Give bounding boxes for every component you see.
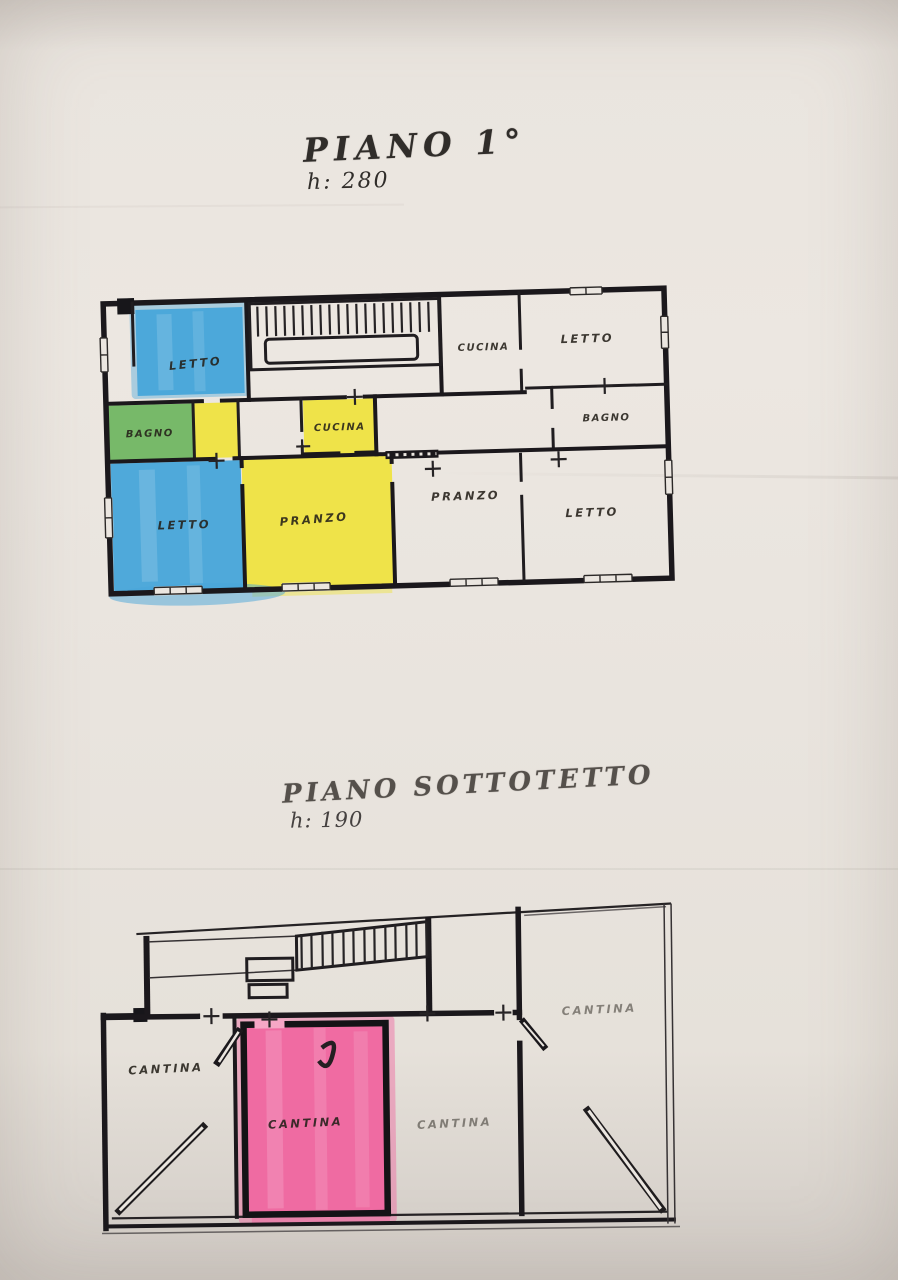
stair-outline (296, 921, 429, 970)
wall-with-door (518, 909, 522, 1213)
room-label-bagno-left: BAGNO (126, 428, 174, 440)
plan2-title: PIANO SOTTOTETTO (281, 760, 655, 809)
wall-with-door (521, 454, 525, 580)
wall (234, 1016, 236, 1217)
wall-with-doors (103, 1012, 519, 1017)
wall-outer-top-sloped (136, 904, 671, 935)
window (660, 316, 670, 348)
diagonal-door-leaf-core (523, 1022, 543, 1046)
wall (238, 400, 240, 458)
window (450, 577, 498, 587)
paper-crease (0, 204, 404, 209)
room-label-pranzo-right: PRANZO (431, 488, 500, 504)
room-label-letto-bottom-right: LETTO (565, 505, 619, 520)
room-label-bagno-right: BAGNO (582, 412, 630, 424)
door-tick (203, 1008, 219, 1024)
wall-outer-left (103, 1015, 106, 1228)
wall-outer-bottom-thin (102, 1226, 680, 1233)
window (664, 460, 674, 494)
stair-treads (257, 302, 429, 337)
wall-outer-right-thin (664, 904, 668, 1224)
room-fill-letto-top-left (135, 307, 244, 396)
door-tick (596, 378, 612, 394)
door-tick (550, 451, 566, 467)
plan1-floorplan-drawing: LETTO CUCINA LETTO BAGNO CUCINA BAGNO LE… (98, 278, 678, 600)
wall (193, 401, 195, 459)
wall-outer-right-thin (671, 904, 675, 1224)
room-label-letto-bottom-left: LETTO (157, 517, 211, 532)
stair-lower-run (265, 335, 418, 363)
wall-with-door (519, 292, 522, 392)
paper-crease (0, 868, 898, 870)
plan1-staircase (249, 299, 441, 370)
room-label-cucina-small: CUCINA (314, 422, 366, 434)
stair-landing (247, 958, 293, 981)
room-label-letto-top-right: LETTO (560, 331, 614, 346)
marker-streak (192, 311, 205, 391)
window (104, 498, 114, 538)
wall-stub (132, 303, 134, 365)
window (584, 573, 632, 583)
stair-treads (301, 922, 427, 969)
plan2-group: CANTINA CANTINA CANTINA CANTINA (98, 903, 680, 1233)
wall-with-door (552, 387, 554, 449)
stair-step-box (249, 984, 287, 997)
plan2-height-note: h: 190 (290, 807, 364, 832)
plan1-height-note: h: 280 (307, 168, 390, 195)
room-label-cantina-left: CANTINA (128, 1060, 204, 1078)
wall (375, 396, 377, 454)
room-label-cantina-center: CANTINA (417, 1114, 493, 1132)
plan2-floorplan-drawing: CANTINA CANTINA CANTINA CANTINA (98, 897, 678, 1232)
marker-streak (156, 314, 173, 390)
marker-streak (354, 1031, 370, 1207)
door-tick (419, 1005, 435, 1021)
door-tick (495, 1004, 511, 1020)
stair-wall-left (146, 936, 147, 1017)
roof-slope-line-left-core (119, 1127, 204, 1210)
scanned-floorplan-page: PIANO 1° h: 280 (0, 0, 898, 1280)
door-tick (425, 461, 441, 477)
window (282, 582, 330, 592)
window (99, 338, 109, 372)
plan1-title: PIANO 1° (302, 121, 527, 170)
marker-streak (139, 470, 158, 582)
room-label-cantina-right: CANTINA (561, 1001, 637, 1019)
roof-slope-line-right-core (589, 1110, 661, 1210)
room-label-cucina-top: CUCINA (458, 342, 510, 354)
room-fill-hallway (193, 402, 241, 458)
plan1-group: LETTO CUCINA LETTO BAGNO CUCINA BAGNO LE… (98, 283, 676, 608)
window (570, 286, 602, 296)
window (154, 585, 202, 595)
